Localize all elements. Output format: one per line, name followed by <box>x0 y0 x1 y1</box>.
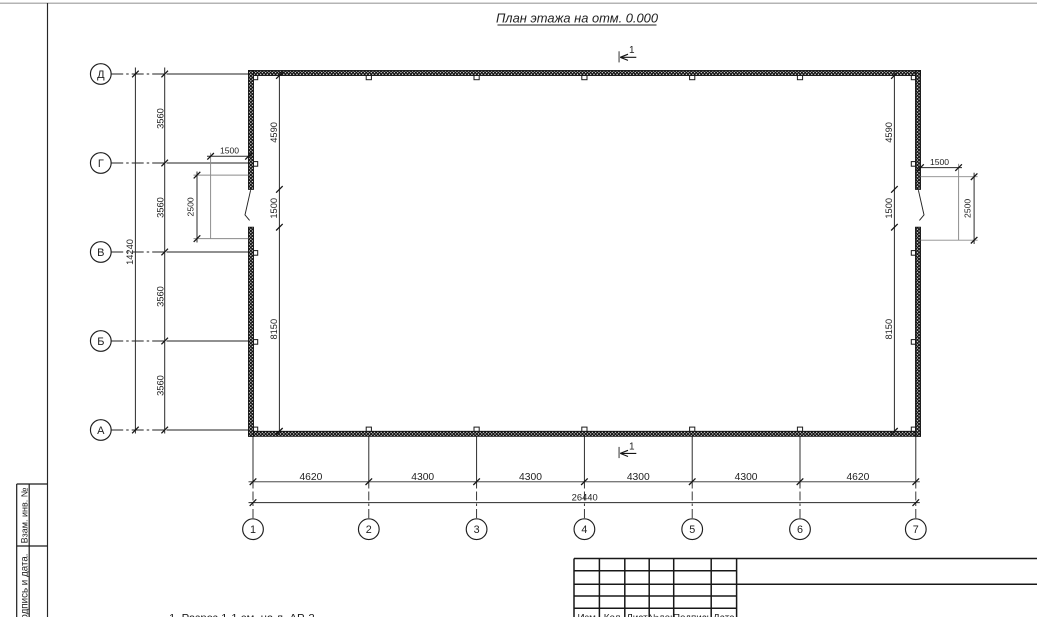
svg-text:1: 1 <box>250 524 256 536</box>
svg-text:4590: 4590 <box>269 122 279 143</box>
svg-text:1500: 1500 <box>220 146 239 156</box>
svg-text:1. Разрез 1-1 см. на л. АР-2: 1. Разрез 1-1 см. на л. АР-2 <box>169 613 315 617</box>
svg-text:4: 4 <box>581 524 587 536</box>
svg-text:4300: 4300 <box>627 472 650 483</box>
svg-text:1500: 1500 <box>930 157 949 167</box>
svg-text:Взам. инв. №: Взам. инв. № <box>19 487 29 543</box>
svg-text:1: 1 <box>629 442 635 453</box>
svg-text:1500: 1500 <box>269 198 279 219</box>
svg-text:8150: 8150 <box>269 319 279 340</box>
svg-text:Д: Д <box>97 69 105 81</box>
svg-text:2500: 2500 <box>185 197 195 216</box>
svg-text:Лист: Лист <box>626 613 648 617</box>
svg-text:Кол: Кол <box>604 613 621 617</box>
svg-text:6: 6 <box>797 524 803 536</box>
svg-text:Подпись и дата.: Подпись и дата. <box>19 554 30 617</box>
svg-text:А: А <box>97 425 105 437</box>
svg-text:План этажа на отм. 0.000: План этажа на отм. 0.000 <box>496 11 659 26</box>
svg-text:В: В <box>97 247 104 259</box>
svg-text:26440: 26440 <box>572 491 598 502</box>
svg-text:4620: 4620 <box>846 472 869 483</box>
svg-text:4300: 4300 <box>411 472 434 483</box>
svg-text:1500: 1500 <box>884 198 894 219</box>
svg-text:№док: №док <box>648 613 675 617</box>
svg-text:14240: 14240 <box>125 239 135 265</box>
svg-text:7: 7 <box>913 524 919 536</box>
svg-text:3560: 3560 <box>156 108 166 129</box>
svg-text:Б: Б <box>97 336 104 348</box>
svg-text:4620: 4620 <box>299 472 322 483</box>
svg-text:3560: 3560 <box>156 375 166 396</box>
svg-text:3560: 3560 <box>156 286 166 307</box>
svg-text:4590: 4590 <box>884 122 894 143</box>
svg-text:2500: 2500 <box>963 199 973 218</box>
svg-text:3560: 3560 <box>156 197 166 218</box>
svg-text:4300: 4300 <box>519 472 542 483</box>
svg-text:8150: 8150 <box>884 319 894 340</box>
svg-text:Г: Г <box>98 158 104 170</box>
svg-text:Подпись: Подпись <box>673 613 712 617</box>
svg-text:Дата: Дата <box>713 613 735 617</box>
svg-text:Изм: Изм <box>578 613 597 617</box>
svg-text:2: 2 <box>366 524 372 536</box>
svg-text:1: 1 <box>629 45 635 56</box>
svg-text:4300: 4300 <box>735 472 758 483</box>
svg-text:3: 3 <box>474 524 480 536</box>
svg-text:5: 5 <box>689 524 695 536</box>
